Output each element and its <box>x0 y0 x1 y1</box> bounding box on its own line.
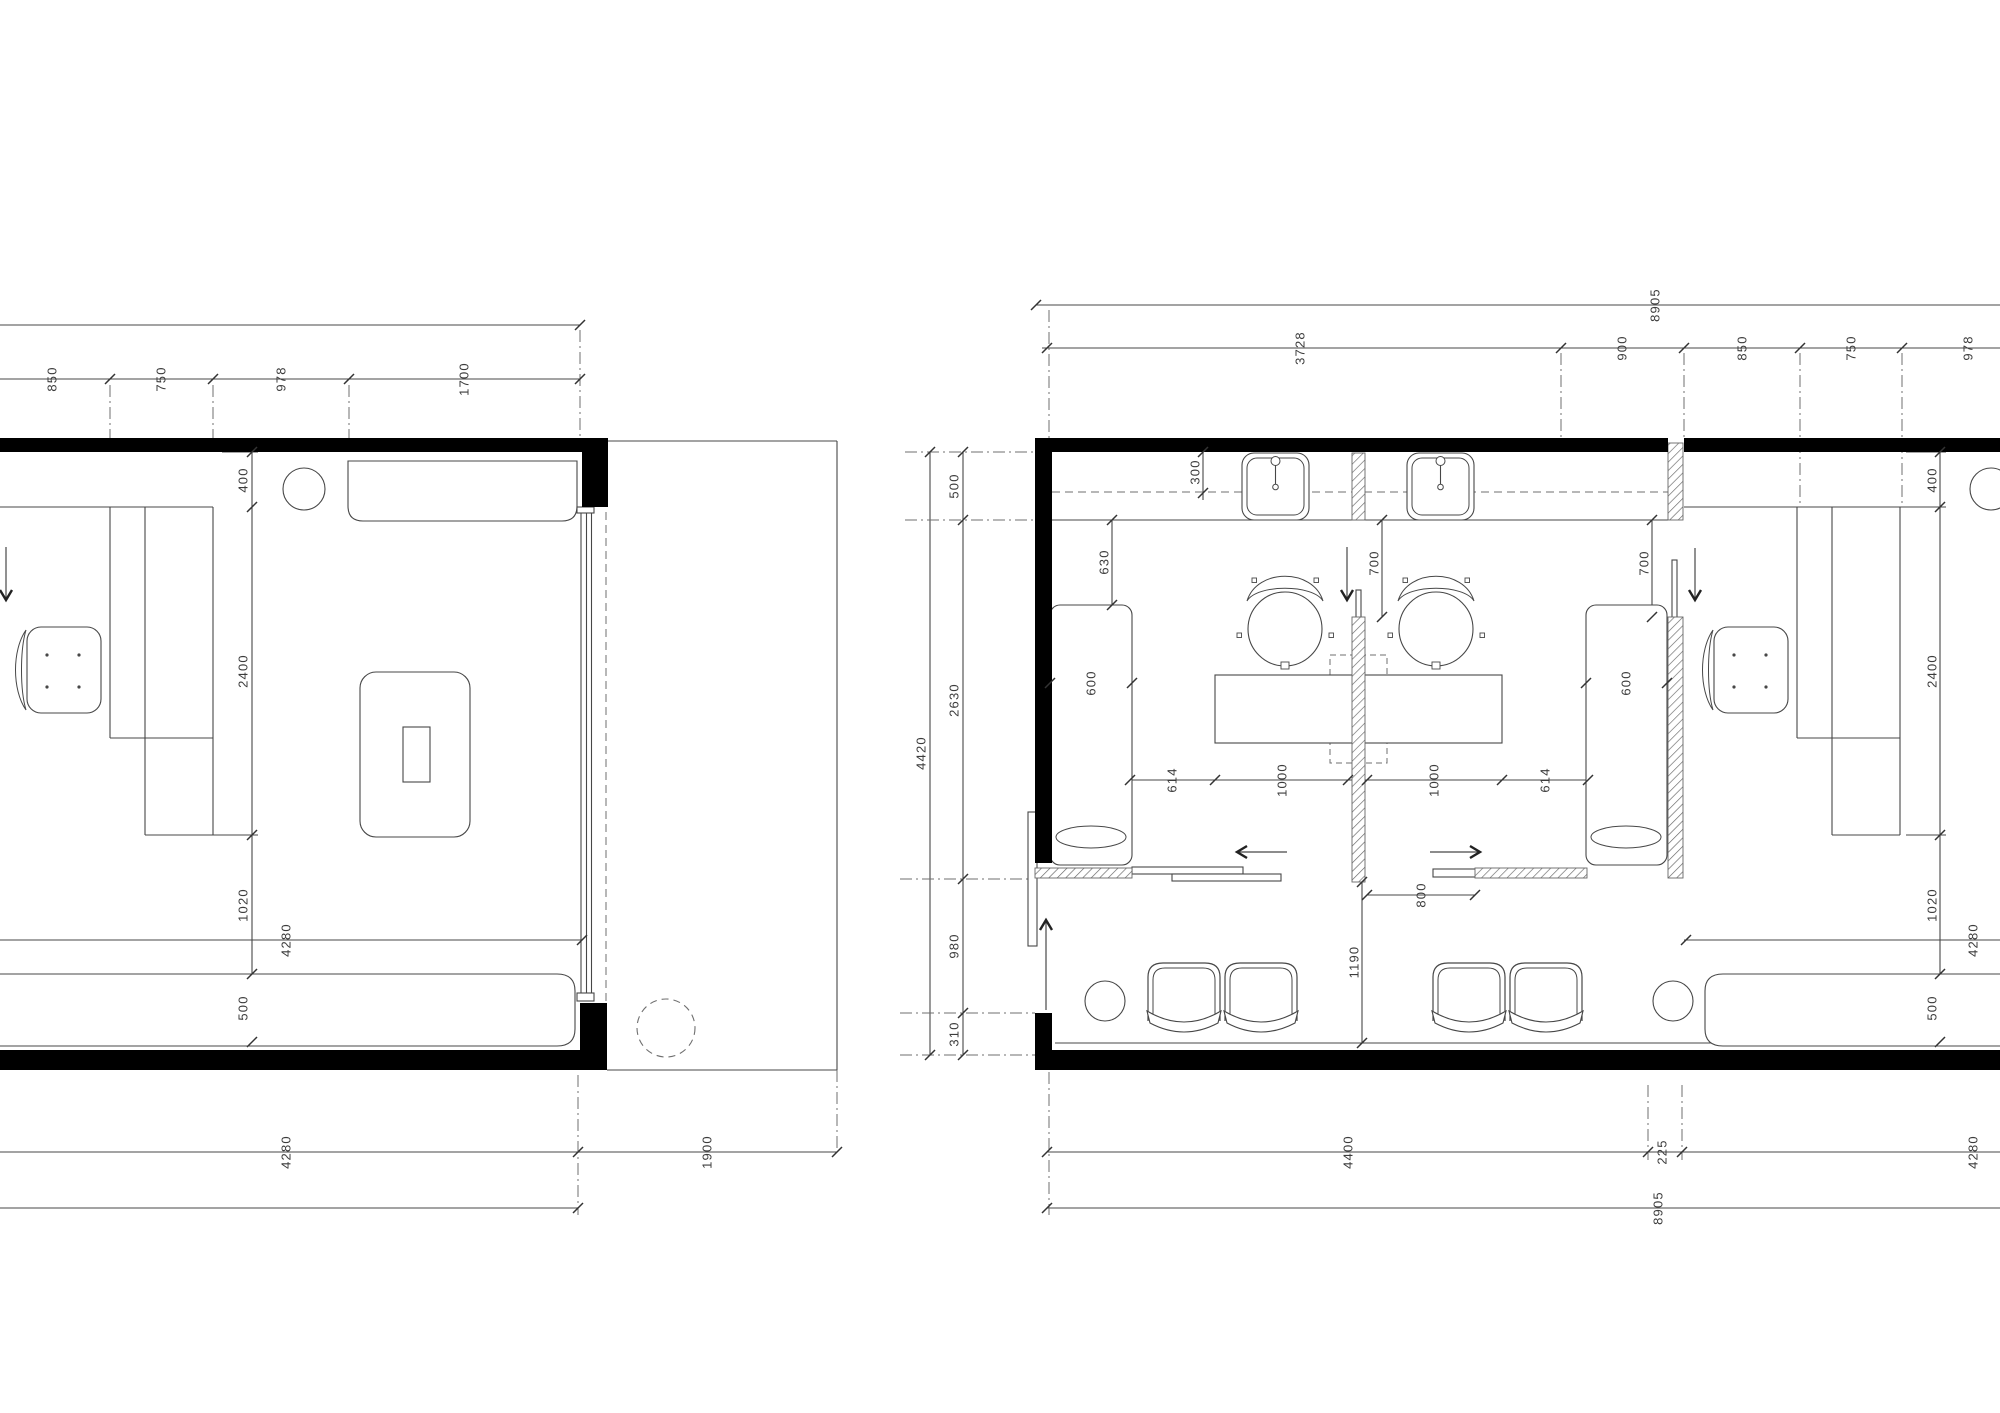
furniture-rect <box>1172 874 1281 881</box>
armrest-square <box>1480 633 1485 638</box>
dim-label: 630 <box>1097 549 1112 574</box>
office-chair-backrest <box>16 630 27 710</box>
wall-shelf <box>348 461 577 521</box>
dim-label: 1900 <box>700 1135 715 1169</box>
dim-label: 900 <box>1615 335 1630 360</box>
stool-circle <box>1970 468 2000 510</box>
dim-label: 4280 <box>279 923 294 957</box>
floor-plan-page: 8507509781700400240010205004280428019008… <box>0 0 2000 1413</box>
sink-faucet <box>1436 457 1445 466</box>
furniture-rect <box>577 507 594 513</box>
dim-label: 4280 <box>1966 923 1981 957</box>
wall <box>0 1050 580 1070</box>
dim-label: 300 <box>1188 459 1203 484</box>
dim-label: 8905 <box>1648 288 1663 322</box>
sofa-left-plan <box>0 974 575 1046</box>
dim-label: 700 <box>1367 550 1382 575</box>
hatched-partition <box>1352 453 1365 520</box>
sink-faucet <box>1271 457 1280 466</box>
dim-label: 500 <box>947 473 962 498</box>
chair-foot <box>1432 662 1440 669</box>
hatched-partition <box>1475 868 1587 878</box>
stool-circle <box>1653 981 1693 1021</box>
dashed-circle <box>637 999 695 1057</box>
armrest-square <box>1465 578 1470 583</box>
hatched-partition <box>1668 443 1683 520</box>
chair-dot <box>1732 653 1735 656</box>
dim-label: 2400 <box>1925 654 1940 688</box>
hatched-partition <box>1668 617 1683 878</box>
chair-dot <box>1732 685 1735 688</box>
office-chair-seat <box>27 627 101 713</box>
furniture-rect <box>1132 867 1243 874</box>
dim-label: 978 <box>274 366 289 391</box>
wall <box>1035 438 1668 452</box>
stool-circle <box>283 468 325 510</box>
dim-label: 500 <box>1925 995 1940 1020</box>
sofa-right-room <box>1705 974 2000 1046</box>
dim-label: 750 <box>154 366 169 391</box>
wall <box>1035 438 1052 863</box>
dim-label: 614 <box>1165 767 1180 792</box>
dim-label: 4400 <box>1341 1135 1356 1169</box>
dim-label: 8905 <box>1651 1191 1666 1225</box>
furniture-rect <box>577 993 594 1001</box>
dim-label: 1190 <box>1347 946 1362 979</box>
dim-label: 614 <box>1538 767 1553 792</box>
sink-drain <box>1273 484 1279 490</box>
dim-label: 3728 <box>1293 331 1308 365</box>
dim-label: 4420 <box>914 736 929 770</box>
dim-label: 4280 <box>279 1135 294 1169</box>
armrest-square <box>1252 578 1257 583</box>
dim-label: 2630 <box>947 683 962 717</box>
dim-label: 500 <box>236 995 251 1020</box>
dim-label: 978 <box>1961 335 1976 360</box>
dim-label: 700 <box>1637 550 1652 575</box>
chair-dot <box>77 685 80 688</box>
dim-label: 4280 <box>1966 1135 1981 1169</box>
waiting-chair-back <box>1148 963 1220 1021</box>
office-chair-backrest <box>1703 630 1714 710</box>
dim-label: 600 <box>1619 670 1634 695</box>
chair-dot <box>77 653 80 656</box>
dim-label: 1700 <box>457 362 472 396</box>
wall <box>580 1003 607 1070</box>
wall <box>1035 1013 1052 1070</box>
chair-dot <box>1764 653 1767 656</box>
armrest-square <box>1388 633 1393 638</box>
hatched-partition <box>1352 617 1365 882</box>
dim-label: 850 <box>45 366 60 391</box>
wall <box>0 438 582 452</box>
chair-foot <box>1281 662 1289 669</box>
dim-label: 800 <box>1414 882 1429 907</box>
waiting-chair-back <box>1433 963 1505 1021</box>
waiting-chair-back <box>1510 963 1582 1021</box>
chair-dot <box>45 653 48 656</box>
office-chair-seat <box>1714 627 1788 713</box>
hatched-partition <box>1035 868 1132 878</box>
dim-label: 1020 <box>1925 888 1940 922</box>
dim-label: 2400 <box>236 654 251 688</box>
furniture-rect <box>403 727 430 782</box>
armrest-square <box>1403 578 1408 583</box>
dim-label: 1000 <box>1275 763 1290 797</box>
chair-dot <box>45 685 48 688</box>
dim-label: 600 <box>1084 670 1099 695</box>
dim-label: 1020 <box>236 888 251 922</box>
dim-label: 1000 <box>1427 763 1442 797</box>
armrest-square <box>1329 633 1334 638</box>
sink-drain <box>1438 484 1444 490</box>
dim-label: 980 <box>947 933 962 958</box>
dim-label: 310 <box>947 1021 962 1046</box>
dim-label: 400 <box>236 467 251 492</box>
dim-label: 400 <box>1925 467 1940 492</box>
waiting-chair-back <box>1225 963 1297 1021</box>
armrest-square <box>1314 578 1319 583</box>
stool-circle <box>1085 981 1125 1021</box>
armrest-square <box>1237 633 1242 638</box>
floor-plan-canvas: 8507509781700400240010205004280428019008… <box>0 0 2000 1413</box>
dim-label: 850 <box>1735 335 1750 360</box>
dim-label: 225 <box>1655 1139 1670 1164</box>
wall <box>582 438 608 507</box>
chair-dot <box>1764 685 1767 688</box>
wall <box>1684 438 2000 452</box>
styling-chair-seat <box>1248 592 1322 666</box>
dim-label: 750 <box>1844 335 1859 360</box>
wall <box>1050 1050 2000 1070</box>
styling-chair-seat <box>1399 592 1473 666</box>
